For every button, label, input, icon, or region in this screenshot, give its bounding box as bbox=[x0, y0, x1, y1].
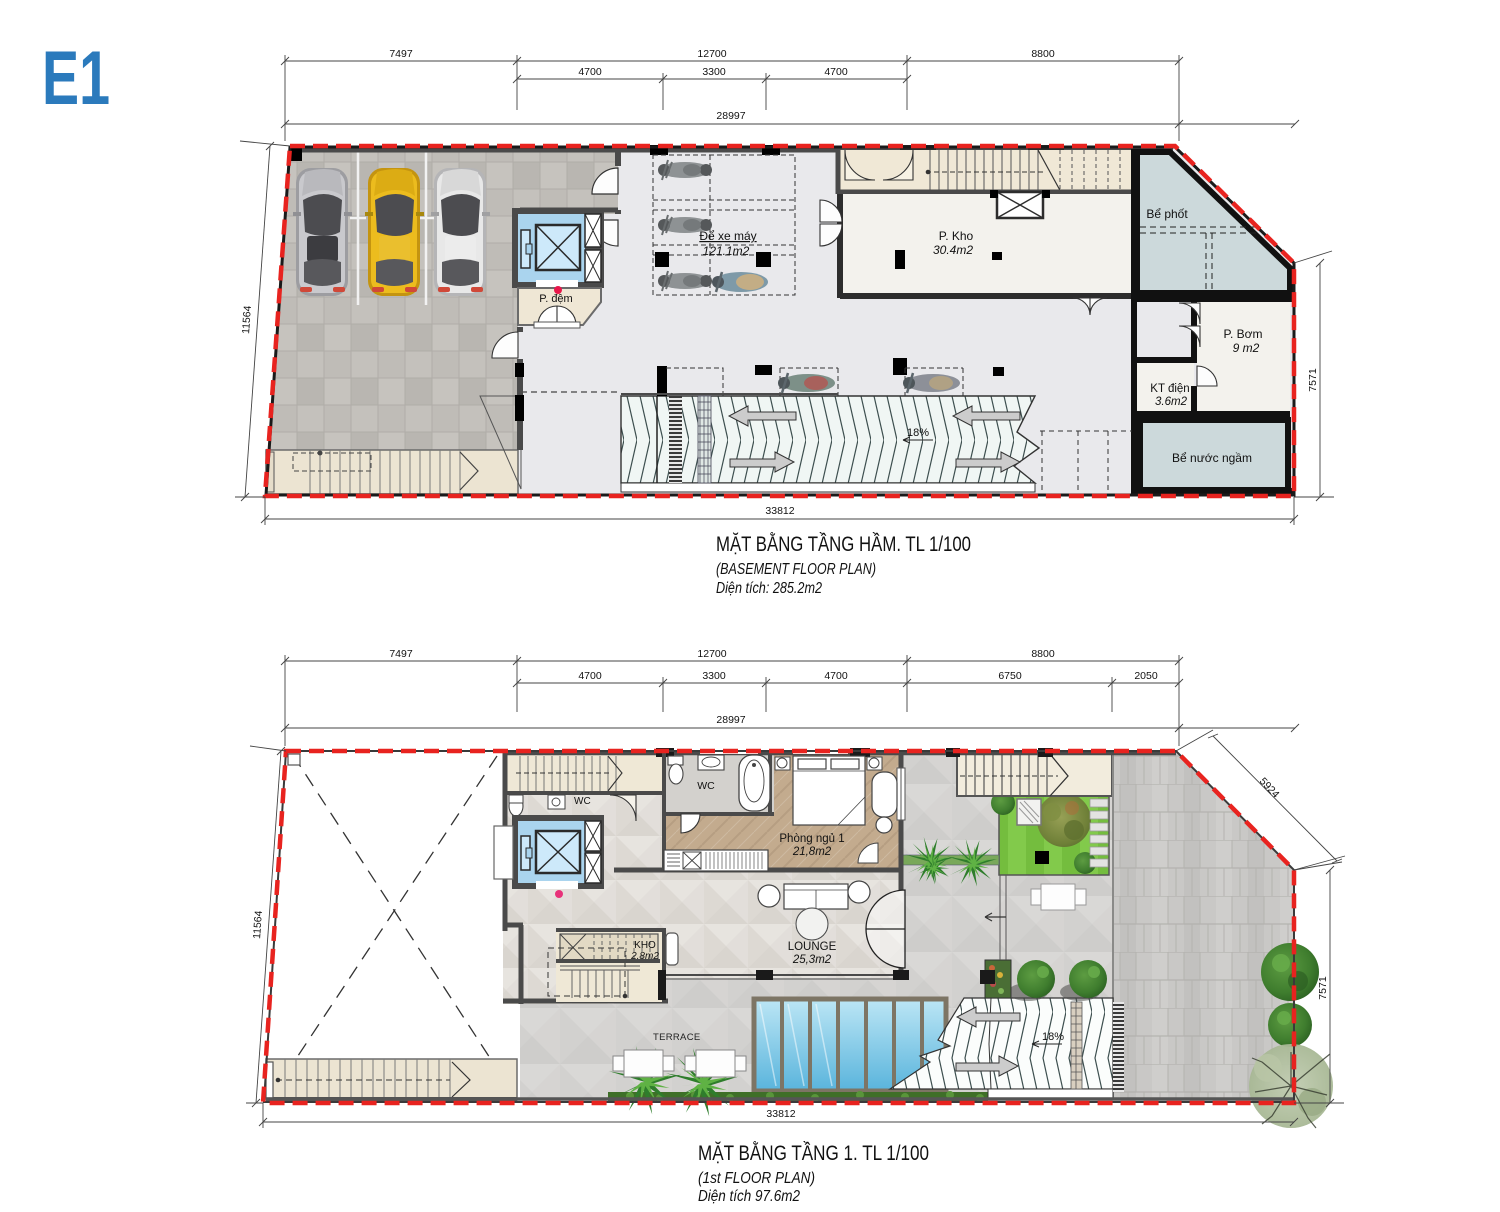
svg-text:2.8m2: 2.8m2 bbox=[630, 951, 659, 962]
svg-text:WC: WC bbox=[697, 780, 715, 792]
svg-text:18%: 18% bbox=[1042, 1031, 1064, 1043]
svg-text:7571: 7571 bbox=[1317, 976, 1329, 1000]
svg-text:5924: 5924 bbox=[1257, 775, 1282, 800]
svg-text:2050: 2050 bbox=[1134, 670, 1158, 682]
svg-text:21,8m2: 21,8m2 bbox=[792, 846, 832, 858]
svg-text:12700: 12700 bbox=[697, 48, 726, 60]
svg-text:28997: 28997 bbox=[716, 714, 745, 726]
svg-text:30.4m2: 30.4m2 bbox=[933, 243, 973, 257]
svg-text:3300: 3300 bbox=[702, 66, 726, 78]
svg-text:6750: 6750 bbox=[998, 670, 1022, 682]
svg-text:Bể nước ngầm: Bể nước ngầm bbox=[1172, 451, 1252, 465]
svg-text:4700: 4700 bbox=[578, 66, 602, 78]
svg-text:Diện tích 97.6m2: Diện tích 97.6m2 bbox=[698, 1188, 800, 1205]
svg-text:TERRACE: TERRACE bbox=[653, 1032, 701, 1043]
svg-text:KT điện: KT điện bbox=[1150, 383, 1189, 395]
svg-text:33812: 33812 bbox=[766, 1108, 795, 1120]
svg-text:7497: 7497 bbox=[389, 648, 413, 660]
svg-text:25,3m2: 25,3m2 bbox=[792, 954, 832, 966]
svg-text:KHO: KHO bbox=[634, 940, 656, 951]
svg-text:(1st FLOOR PLAN): (1st FLOOR PLAN) bbox=[698, 1170, 815, 1187]
svg-text:Bể phốt: Bể phốt bbox=[1146, 207, 1188, 221]
svg-text:Phòng ngủ 1: Phòng ngủ 1 bbox=[779, 833, 844, 845]
svg-text:4700: 4700 bbox=[578, 670, 602, 682]
svg-text:8800: 8800 bbox=[1031, 648, 1055, 660]
svg-text:Diện tích: 285.2m2: Diện tích: 285.2m2 bbox=[716, 580, 822, 597]
svg-text:WC: WC bbox=[574, 796, 591, 807]
svg-text:4700: 4700 bbox=[824, 670, 848, 682]
svg-text:28997: 28997 bbox=[716, 110, 745, 122]
svg-text:(BASEMENT FLOOR PLAN): (BASEMENT FLOOR PLAN) bbox=[716, 561, 876, 578]
svg-text:11564: 11564 bbox=[251, 910, 265, 939]
svg-text:33812: 33812 bbox=[765, 505, 794, 517]
svg-text:9 m2: 9 m2 bbox=[1233, 341, 1260, 355]
svg-text:P. Kho: P. Kho bbox=[939, 229, 974, 243]
svg-text:7497: 7497 bbox=[389, 48, 413, 60]
svg-text:11564: 11564 bbox=[240, 305, 254, 334]
svg-text:P. đệm: P. đệm bbox=[539, 293, 572, 305]
svg-text:121.1m2: 121.1m2 bbox=[703, 244, 750, 258]
svg-text:E1: E1 bbox=[42, 36, 110, 121]
svg-text:LOUNGE: LOUNGE bbox=[788, 941, 837, 953]
svg-text:MẶT BẰNG TẦNG 1. TL 1/100: MẶT BẰNG TẦNG 1. TL 1/100 bbox=[698, 1140, 929, 1165]
svg-text:12700: 12700 bbox=[697, 648, 726, 660]
svg-text:8800: 8800 bbox=[1031, 48, 1055, 60]
svg-text:4700: 4700 bbox=[824, 66, 848, 78]
svg-text:MẶT BẰNG TẦNG HẦM. TL 1/100: MẶT BẰNG TẦNG HẦM. TL 1/100 bbox=[716, 531, 971, 556]
svg-text:18%: 18% bbox=[907, 427, 929, 439]
svg-text:Để xe máy: Để xe máy bbox=[699, 229, 756, 243]
svg-text:7571: 7571 bbox=[1307, 368, 1319, 392]
svg-text:3.6m2: 3.6m2 bbox=[1155, 396, 1188, 408]
svg-text:3300: 3300 bbox=[702, 670, 726, 682]
svg-text:P. Bơm: P. Bơm bbox=[1224, 327, 1263, 341]
